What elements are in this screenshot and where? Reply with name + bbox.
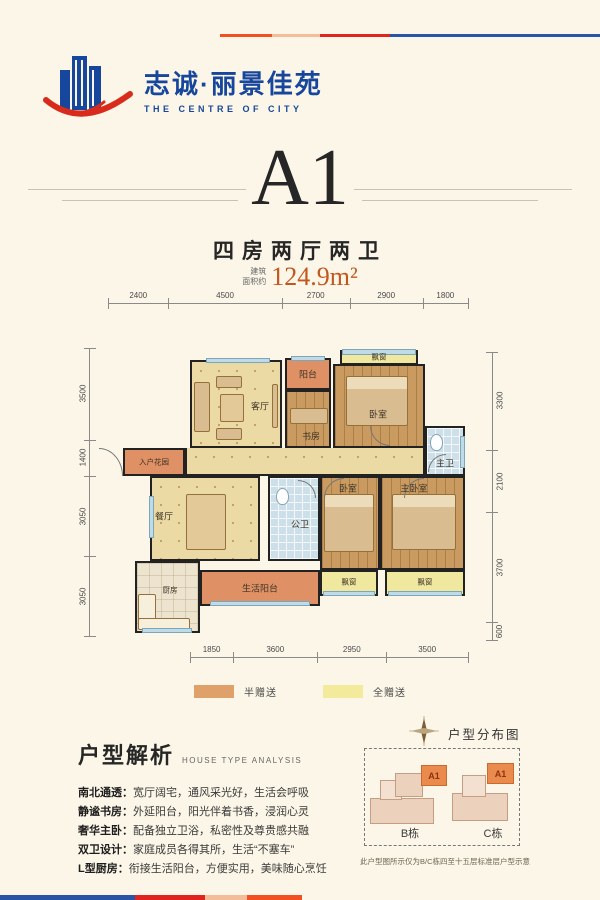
dimension-segment: 2400 xyxy=(108,291,168,303)
window xyxy=(149,496,154,538)
tv-stand xyxy=(272,384,278,428)
brand-name: 志诚·丽景佳苑 xyxy=(144,64,323,101)
brand-header: 志诚·丽景佳苑 THE CENTRE OF CITY xyxy=(42,50,323,128)
distribution-note: 此户型图所示仅为B/C栋四至十五层标准层户型示意 xyxy=(350,856,540,867)
distribution-title: 户型分布图 xyxy=(448,724,521,743)
analysis-section: 户型解析 HOUSE TYPE ANALYSIS 南北通透：宽厅阔宅，通风采光好… xyxy=(78,738,368,879)
floor-plan: 客厅 阳台 书房 飘窗 卧室 主卫 入户花园 餐厅 公卫 卧室 主卧室 厨房 生… xyxy=(108,348,468,640)
dimension-segment: 3500 xyxy=(76,348,89,440)
room-corridor xyxy=(185,448,425,476)
room-label-living: 客厅 xyxy=(251,400,269,413)
brand-logo-icon xyxy=(42,50,134,128)
dimension-segment: 3700 xyxy=(493,512,506,622)
legend-label-half: 半赠送 xyxy=(244,684,277,699)
analysis-list: 南北通透：宽厅阔宅，通风采光好，生活会呼吸 静谧书房：外延阳台，阳光伴着书香，浸… xyxy=(78,784,368,879)
room-label-bay-b1: 飘窗 xyxy=(342,577,357,588)
legend: 半赠送 全赠送 xyxy=(0,684,600,699)
dimension-segment: 2950 xyxy=(317,645,386,657)
room-label-balcony: 阳台 xyxy=(299,368,317,381)
distribution-box: A1 A1 B栋 C栋 xyxy=(364,748,520,846)
stripe-segment xyxy=(220,34,272,37)
stripe-segment xyxy=(247,895,302,900)
room-label-kitchen: 厨房 xyxy=(163,585,178,596)
dimension-column-right: 3300 2100 3700 600 xyxy=(492,352,506,640)
area-value: 124.9m² xyxy=(271,262,358,292)
analysis-heading: 户型解析 HOUSE TYPE ANALYSIS xyxy=(78,738,368,770)
coffee-table xyxy=(220,394,244,422)
dimension-segment: 2700 xyxy=(282,291,350,303)
unit-title: A1 xyxy=(0,138,600,218)
legend-swatch-full xyxy=(323,685,363,698)
sofa xyxy=(194,382,210,432)
window xyxy=(142,628,192,633)
analysis-item: 静谧书房：外延阳台，阳光伴着书香，浸润心灵 xyxy=(78,803,368,822)
dimension-column-left: 3500 1400 3050 3050 xyxy=(76,348,90,636)
compass-icon xyxy=(409,716,439,746)
room-label-master-bath: 主卫 xyxy=(436,457,454,470)
analysis-title-en: HOUSE TYPE ANALYSIS xyxy=(182,756,302,765)
building-c-block xyxy=(452,793,508,821)
building-b-block xyxy=(395,773,423,797)
dimension-row-top: 2400 4500 2700 2900 1800 xyxy=(108,291,468,304)
unit-subtitle: 四房两厅两卫 xyxy=(0,235,600,265)
dimension-segment: 1400 xyxy=(76,440,89,477)
sofa-chair xyxy=(216,376,242,388)
area-label-line2: 面积约 xyxy=(242,277,266,287)
floorplan-flyer-page: 志诚·丽景佳苑 THE CENTRE OF CITY A1 四房两厅两卫 建筑 … xyxy=(0,0,600,900)
analysis-item: 南北通透：宽厅阔宅，通风采光好，生活会呼吸 xyxy=(78,784,368,803)
door-arc-entry xyxy=(99,448,123,476)
room-label-bedroom-mid: 卧室 xyxy=(339,482,357,495)
building-c-label: C栋 xyxy=(460,825,526,841)
legend-swatch-half xyxy=(194,685,234,698)
window xyxy=(323,591,375,596)
dimension-segment: 3050 xyxy=(76,476,89,556)
building-c-unit-a1: A1 xyxy=(487,763,514,784)
toilet xyxy=(430,434,443,451)
bed xyxy=(392,494,456,550)
bed xyxy=(324,494,374,552)
stripe-segment xyxy=(320,34,390,37)
sofa-chair xyxy=(216,428,242,440)
stripe-segment xyxy=(135,895,205,900)
study-desk xyxy=(290,408,328,424)
stripe-segment xyxy=(272,34,320,37)
stripe-segment xyxy=(0,895,135,900)
stripe-segment xyxy=(205,895,247,900)
room-label-dining: 餐厅 xyxy=(155,510,173,523)
dining-table xyxy=(186,494,226,550)
room-label-bedroom-top: 卧室 xyxy=(369,408,387,421)
dimension-segment: 1800 xyxy=(423,291,468,303)
analysis-item: L型厨房：衔接生活阳台，方便实用，美味随心烹饪 xyxy=(78,860,368,879)
area-label-line1: 建筑 xyxy=(242,267,266,277)
dimension-segment: 2900 xyxy=(350,291,423,303)
room-label-utility-balcony: 生活阳台 xyxy=(242,582,278,595)
brand-text: 志诚·丽景佳苑 THE CENTRE OF CITY xyxy=(144,64,323,114)
building-b-unit-a1: A1 xyxy=(421,765,447,786)
area-label: 建筑 面积约 xyxy=(242,267,266,287)
legend-item-half: 半赠送 xyxy=(194,684,277,699)
dimension-segment: 3050 xyxy=(76,556,89,636)
room-label-study: 书房 xyxy=(302,430,320,443)
legend-item-full: 全赠送 xyxy=(323,684,406,699)
room-label-master-bedroom: 主卧室 xyxy=(400,482,427,495)
stripe-segment xyxy=(390,34,600,37)
dimension-row-bottom: 1850 3600 2950 3500 xyxy=(190,645,468,658)
window xyxy=(460,436,465,468)
toilet xyxy=(276,488,289,505)
room-label-bay-b2: 飘窗 xyxy=(418,577,433,588)
analysis-title: 户型解析 xyxy=(78,738,174,770)
room-label-public-bath: 公卫 xyxy=(291,518,309,531)
dimension-segment: 600 xyxy=(493,622,506,640)
building-c-block xyxy=(462,775,486,797)
building-b-block xyxy=(370,798,434,824)
dimension-segment: 4500 xyxy=(168,291,281,303)
building-b-label: B栋 xyxy=(377,825,443,841)
dimension-segment: 3300 xyxy=(493,352,506,450)
dimension-segment: 3600 xyxy=(233,645,317,657)
window xyxy=(291,356,325,361)
room-label-bay-top: 飘窗 xyxy=(372,352,387,363)
window xyxy=(388,591,462,596)
brand-tagline: THE CENTRE OF CITY xyxy=(144,104,323,114)
analysis-item: 双卫设计：家庭成员各得其所，生活“不塞车” xyxy=(78,841,368,860)
area-row: 建筑 面积约 124.9m² xyxy=(0,262,600,292)
dimension-segment: 3500 xyxy=(386,645,468,657)
analysis-item: 奢华主卧：配备独立卫浴，私密性及尊贵感共融 xyxy=(78,822,368,841)
window xyxy=(206,358,270,363)
legend-label-full: 全赠送 xyxy=(373,684,406,699)
dimension-segment: 1850 xyxy=(190,645,233,657)
dimension-segment: 2100 xyxy=(493,450,506,512)
room-label-entry-garden: 入户花园 xyxy=(139,457,169,468)
window xyxy=(210,601,310,606)
